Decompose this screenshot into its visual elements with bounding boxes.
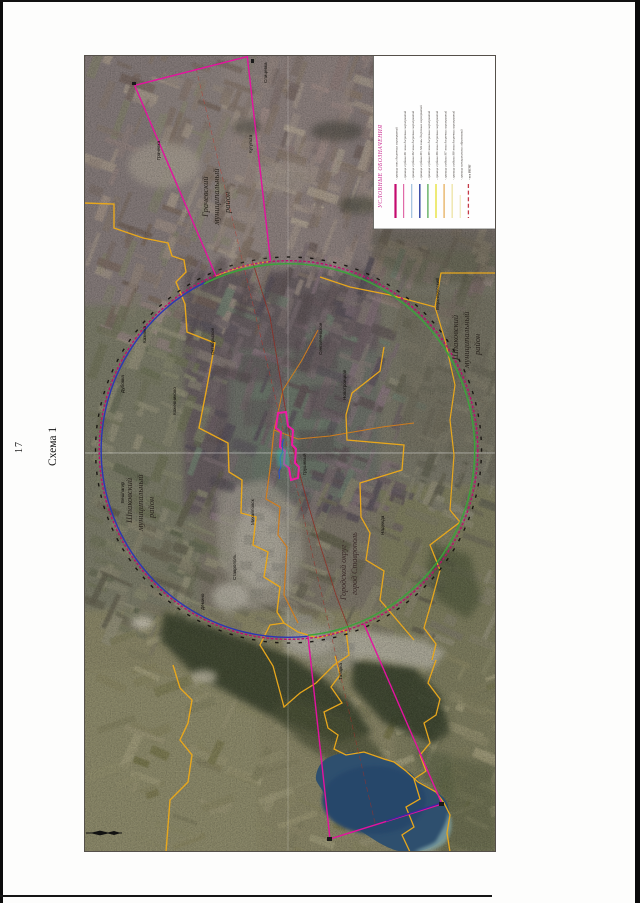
svg-text:муниципальный: муниципальный	[135, 474, 145, 532]
svg-text:Грушевый: Грушевый	[301, 453, 307, 475]
svg-text:Городской округ -: Городской округ -	[339, 540, 348, 601]
svg-text:район: район	[146, 497, 156, 519]
svg-text:- граница глубины М7 зоны доср: - граница глубины М7 зоны досрочных меро…	[442, 110, 447, 180]
svg-text:Октябрьское: Октябрьское	[210, 327, 215, 355]
svg-text:Новотроицкая: Новотроицкая	[342, 369, 347, 400]
svg-text:Бешпагир: Бешпагир	[120, 481, 125, 503]
svg-text:Михайловск: Михайловск	[249, 498, 255, 525]
svg-text:- граница зоны досрочных мероп: - граница зоны досрочных мероприятий	[394, 127, 399, 180]
svg-text:Спицевка: Спицевка	[263, 62, 268, 83]
svg-text:- граница муниципальных образо: - граница муниципальных образований	[459, 129, 464, 180]
svg-text:Грачевка: Грачевка	[156, 140, 161, 160]
svg-text:Казинка: Казинка	[142, 326, 147, 343]
svg-text:район: район	[222, 192, 232, 214]
svg-text:Шпаковский: Шпаковский	[124, 477, 134, 524]
svg-text:Татарка: Татарка	[338, 663, 343, 680]
svg-text:- граница глубины М6 зоны доср: - граница глубины М6 зоны досрочных меро…	[434, 110, 439, 180]
svg-text:Ставрополь: Ставрополь	[232, 554, 237, 580]
svg-text:- граница глубины М2 зоны доср: - граница глубины М2 зоны досрочных меро…	[410, 110, 415, 180]
svg-text:муниципальный: муниципальный	[211, 168, 221, 226]
svg-text:- ось ВПЗП: - ось ВПЗП	[468, 164, 472, 180]
svg-text:Кугульта: Кугульта	[248, 134, 253, 153]
svg-text:- граница глубины М5 зоны доср: - граница глубины М5 зоны досрочных меро…	[426, 110, 431, 180]
svg-text:район: район	[472, 334, 482, 356]
svg-text:Кожевниково: Кожевниково	[172, 387, 177, 415]
svg-text:Шпаковский: Шпаковский	[450, 314, 460, 361]
svg-text:муниципальный: муниципальный	[461, 311, 471, 369]
svg-text:- граница глубины М8 зоны доср: - граница глубины М8 зоны досрочных меро…	[450, 110, 455, 180]
svg-text:Грачевский: Грачевский	[200, 176, 210, 218]
svg-text:Верхнерусский: Верхнерусский	[434, 278, 440, 310]
svg-text:Сенгилеевское: Сенгилеевское	[318, 322, 323, 355]
svg-text:город Ставрополь: город Ставрополь	[350, 532, 359, 595]
svg-text:- граница глубины М1 зоны доср: - граница глубины М1 зоны досрочных меро…	[402, 110, 407, 180]
svg-text:Дёмино: Дёмино	[200, 593, 205, 610]
svg-text:Надежда: Надежда	[380, 515, 385, 535]
svg-text:Дубовка: Дубовка	[120, 375, 125, 393]
svg-text:УСЛОВНЫЕ ОБОЗНАЧЕНИЯ: УСЛОВНЫЕ ОБОЗНАЧЕНИЯ	[378, 124, 384, 208]
